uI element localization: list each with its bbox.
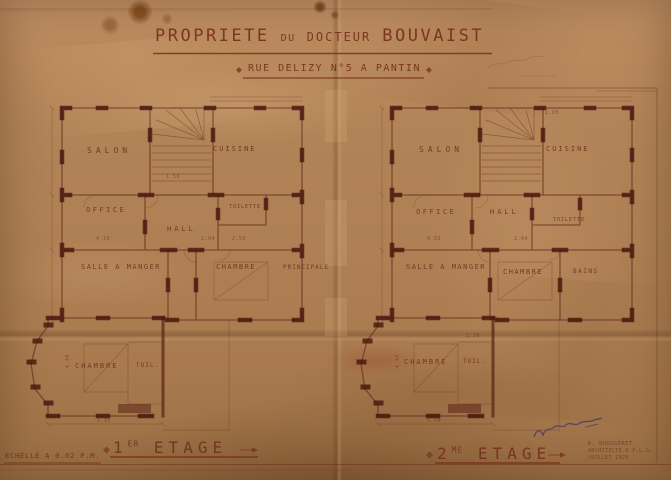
dim-label: 4.02 [427,237,441,242]
scale-note: ECHELLE A 0.02 P.M. [5,453,100,460]
room-label-chambre-principale-1a: CHAMBRE [216,264,256,271]
title-word-du: DU [281,33,296,44]
room-label-salon-2: SALON [419,146,463,154]
room-label-cuisine-1: CUISINE [213,146,257,153]
sheet-subtitle-address: RUE DELIZY N°5 A PANTIN [248,64,421,74]
floor-label-1er-etage: 1ER ETAGE [113,438,227,457]
stairs-2 [482,108,541,181]
dim-label: 4.45 [396,354,401,368]
room-label-hall-2: HALL [490,209,519,216]
room-label-toil-plan1: TOIL. [136,363,159,369]
dim-label: 2.04 [514,237,528,242]
room-label-toilette-1: TOILETTE [229,205,261,210]
blueprint-sheet: PROPRIETE DU DOCTEUR BOUVAIST RUE DELIZY… [0,0,671,480]
stairs-1 [152,108,211,181]
room-label-toilette-2: TOILETTE [553,218,585,223]
floor-number-1: 1 [113,438,128,457]
dim-label: 2.50 [232,237,246,242]
floor-word-1: ETAGE [154,438,227,457]
room-label-toil-plan2: TOIL. [463,359,486,365]
architect-block: R. BOUGGERET ARCHITECTE D.P.L.G. JUILLET… [588,441,668,461]
room-label-bains-2: BAINS [573,269,599,275]
room-label-office-1: OFFICE [86,207,126,214]
chimney-block-1 [118,404,151,413]
dim-label: 4.10 [96,237,110,242]
title-word-bouvaist: BOUVAIST [382,26,484,46]
dim-label: 2.05 [545,111,559,116]
signature [534,418,602,437]
dim-label: 5.50 [427,419,441,424]
floor-word-2: ETAGE [478,444,551,463]
room-label-salle-a-manger-2: SALLE A MANGER [406,264,486,271]
title-word-docteur: DOCTEUR [307,30,372,44]
room-label-chambre-2-plan2: CHAMBRE [404,359,448,366]
dim-label: 1.38 [466,334,480,339]
room-label-salon-1: SALON [87,147,131,155]
architect-date: JUILLET 1925 [588,455,668,462]
room-label-chambre-1-plan2: CHAMBRE [503,269,543,276]
room-label-office-2: OFFICE [416,209,456,216]
floor-number-2: 2 [437,444,452,463]
room-label-salle-a-manger-1: SALLE A MANGER [81,264,161,271]
thin-details-2 [376,91,656,432]
floor-label-2me-etage: 2ME ETAGE [437,444,551,463]
floor-suffix-1: ER [128,440,140,449]
room-label-cuisine-2: CUISINE [546,146,590,153]
floor-plan-2me-etage [359,91,656,432]
room-label-chambre-2-plan1: CHAMBRE [75,363,119,370]
chimney-block-2 [448,404,481,413]
pencil-notes [487,56,557,76]
dim-label: 4.40 [66,354,71,368]
dim-label: 5.95 [97,419,111,424]
title-word-propriete: PROPRIETE [155,26,270,46]
dim-label: 2.04 [201,237,215,242]
room-label-chambre-principale-1b: PRINCIPALE [283,265,329,271]
floor-plan-1er-etage [29,97,302,432]
dim-label: 1.50 [166,175,180,180]
sheet-title: PROPRIETE DU DOCTEUR BOUVAIST [155,26,484,46]
floor-suffix-2: ME [452,446,464,455]
room-label-hall-1: HALL [167,226,196,233]
architect-name: R. BOUGGERET [588,441,668,448]
